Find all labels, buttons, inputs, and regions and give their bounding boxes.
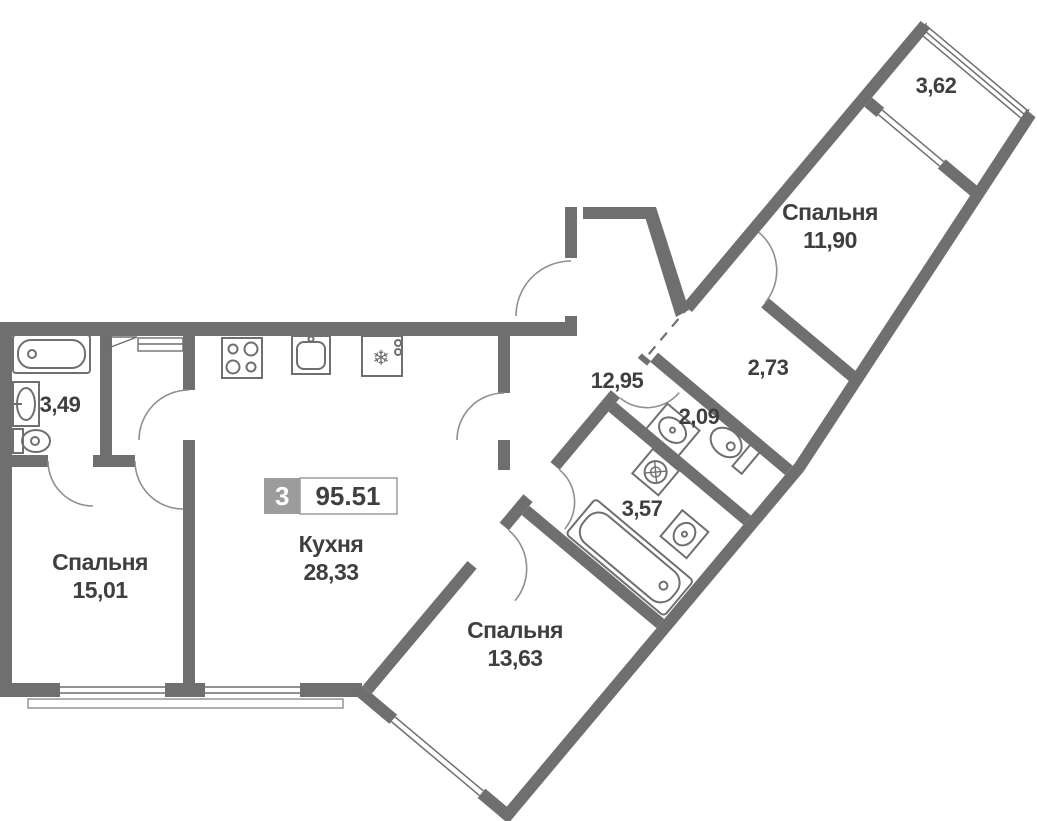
label-wc: 2,09 (679, 404, 720, 429)
label-bedroom-left-name: Спальня (52, 549, 148, 575)
bathroom-right-fixtures (566, 441, 742, 616)
door-arc-kitchen (457, 393, 504, 440)
window-loggia-divider (877, 108, 946, 169)
label-bathroom-left: 3,49 (40, 392, 81, 417)
window-bedroom-left (60, 683, 165, 697)
badge-total-area: 95.51 (315, 481, 380, 511)
label-bedroom-bottom-area: 13,63 (487, 645, 542, 671)
sink-icon (661, 510, 709, 558)
label-bedroom-right-name: Спальня (782, 199, 878, 225)
label-bedroom-right-area: 11,90 (803, 227, 857, 253)
window-sill (28, 699, 343, 708)
door-arc-nook (139, 390, 189, 440)
door-arc-bedroom-bottom (477, 530, 547, 600)
left-wing-doors (48, 261, 571, 509)
nook-cabinet-icon (138, 338, 183, 351)
toilet-icon (13, 429, 50, 453)
window-loggia-glazing (918, 23, 1030, 120)
floor-plan: ❄ (0, 0, 1037, 821)
fridge-icon: ❄ (362, 336, 402, 376)
label-bathroom-right: 3,57 (622, 496, 663, 521)
kitchen-sink-icon (292, 336, 330, 374)
door-arc-bathroom-left (48, 461, 93, 506)
label-bedroom-left-area: 15,01 (72, 577, 128, 603)
kitchen-fixtures: ❄ (222, 336, 402, 378)
left-wing-walls (0, 207, 689, 708)
label-bedroom-bottom-name: Спальня (467, 617, 563, 643)
label-loggia: 3,62 (916, 73, 957, 98)
door-arc-bedroom-left (135, 461, 183, 509)
label-kitchen-area: 28,33 (303, 559, 358, 585)
stove-icon (222, 338, 262, 378)
bathtub-icon (13, 335, 90, 373)
badge-room-count: 3 (275, 481, 289, 511)
snowflake-glyph: ❄ (372, 347, 390, 370)
sink-icon (13, 382, 39, 426)
window-kitchen (205, 683, 300, 697)
area-badge: 3 95.51 (264, 478, 397, 514)
floor-plan-page: ❄ (0, 0, 1037, 821)
window-bedroom-bottom (389, 715, 485, 798)
label-hall: 12,95 (591, 368, 644, 393)
dashed-opening (649, 310, 686, 354)
door-arc-entry (516, 261, 571, 316)
label-corridor: 2,73 (748, 355, 789, 380)
label-kitchen-name: Кухня (299, 531, 364, 557)
